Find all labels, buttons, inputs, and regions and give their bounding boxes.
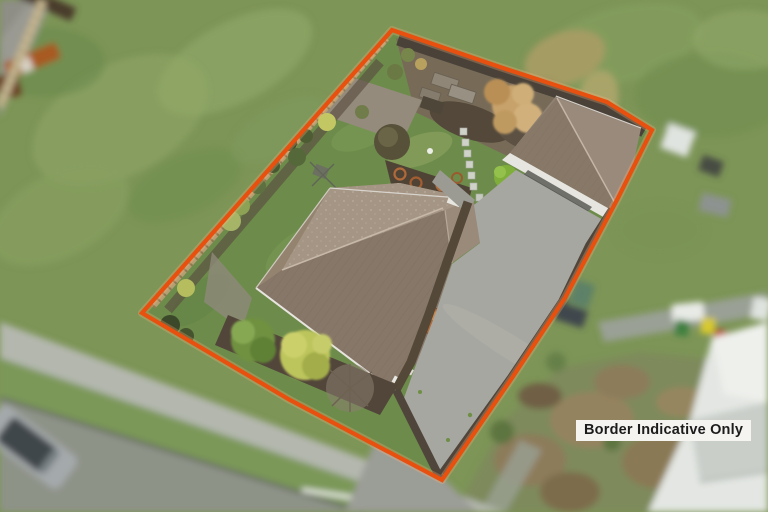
border-indicative-label: Border Indicative Only bbox=[576, 420, 751, 441]
aerial-photo: Border Indicative Only bbox=[0, 0, 768, 512]
white-trailer bbox=[671, 301, 705, 322]
bird-bath bbox=[427, 148, 433, 154]
bare-shrub bbox=[326, 364, 374, 412]
front-yellow-tree bbox=[280, 330, 332, 380]
green-bush-highlight bbox=[494, 166, 506, 178]
